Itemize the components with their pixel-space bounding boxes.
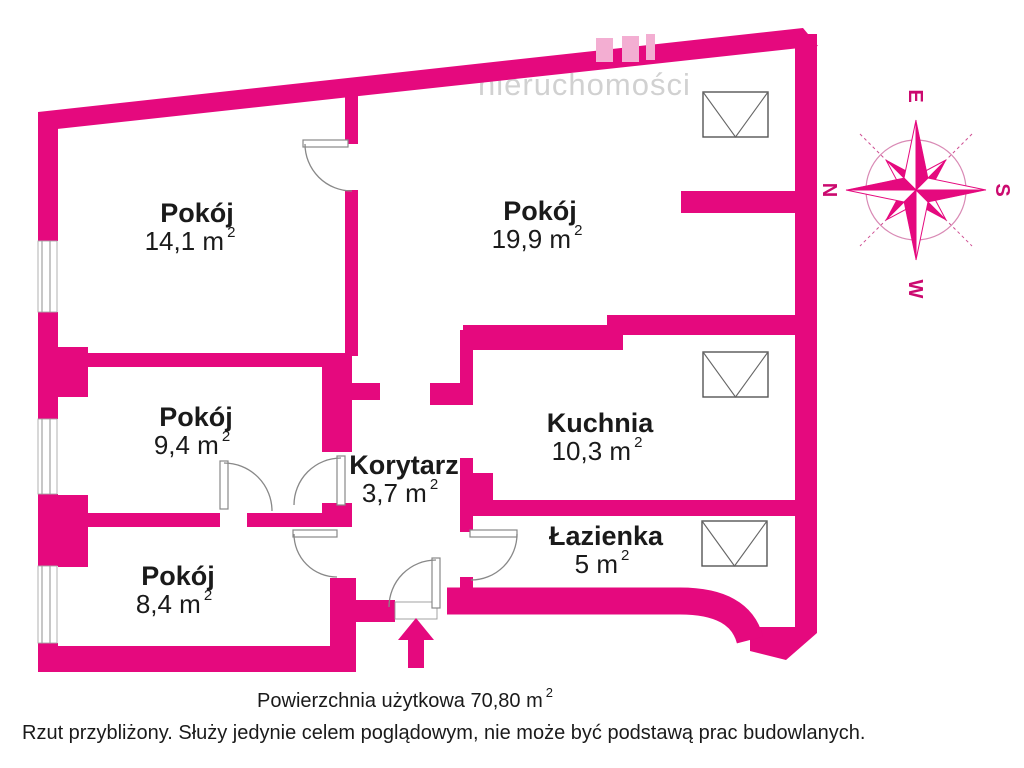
door-corridor: [294, 456, 345, 505]
compass-letter-n: N: [818, 183, 840, 197]
door-room9: [220, 461, 272, 511]
window-left-3: [38, 566, 57, 643]
footer-total-area: Powierzchnia użytkowa 70,80 m2: [257, 685, 553, 712]
room-label-pokoj-14: Pokój: [160, 198, 234, 228]
bath-curved-wall: [447, 601, 750, 640]
door-room8: [293, 530, 337, 577]
room-area-kuchnia: 10,3 m2: [552, 434, 643, 466]
window-icon-room19: [703, 92, 768, 137]
door-entrance: [389, 558, 440, 608]
door-bathroom: [470, 530, 517, 580]
compass-rose: E S W N: [818, 89, 1013, 298]
floor-plan-svg: nieruchomości: [0, 0, 1024, 768]
window-icon-bathroom: [702, 521, 767, 566]
corner-chamfer: [750, 585, 817, 660]
logo-fragment: [596, 38, 613, 62]
window-left-2: [38, 419, 57, 494]
room-label-korytarz: Korytarz: [349, 450, 459, 480]
floor-plan-page: nieruchomości: [0, 0, 1024, 768]
entrance-arrow: [398, 618, 434, 668]
compass-letter-w: W: [904, 280, 926, 299]
logo-fragment: [622, 36, 639, 62]
room-label-lazienka: Łazienka: [549, 521, 664, 551]
outer-wall-top: [38, 28, 818, 129]
door-room14: [303, 140, 352, 191]
window-icon-kitchen: [703, 352, 768, 397]
compass-letter-s: S: [991, 183, 1013, 196]
window-left-1: [38, 241, 57, 312]
compass-letter-e: E: [904, 89, 926, 102]
outer-wall-bottom: [38, 646, 356, 672]
room-area-pokoj-9: 9,4 m2: [154, 428, 230, 460]
room-area-korytarz: 3,7 m2: [362, 476, 438, 508]
logo-fragment: [646, 34, 655, 60]
room-area-pokoj-8: 8,4 m2: [136, 587, 212, 619]
footer-disclaimer: Rzut przybliżony. Służy jedynie celem po…: [22, 722, 865, 744]
room-area-lazienka: 5 m2: [575, 547, 630, 579]
room-area-pokoj-19: 19,9 m2: [492, 222, 583, 254]
room-area-pokoj-14: 14,1 m2: [145, 224, 236, 256]
room-label-pokoj-19: Pokój: [503, 196, 577, 226]
entrance-threshold: [395, 602, 437, 619]
